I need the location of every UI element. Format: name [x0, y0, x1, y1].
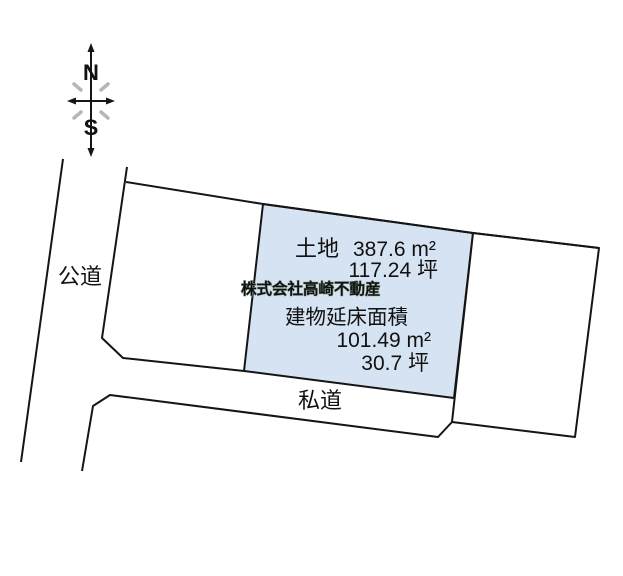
compass-diagonal-dash-nw [74, 84, 81, 90]
compass-arrowhead-south [88, 148, 95, 157]
land-plot-diagram: N S 公道 私道 土地 387.6 m² 117.24 坪 建物延床面積 10… [0, 0, 623, 576]
compass-diagonal-dash-se [101, 112, 108, 118]
compass-arrowhead-north [88, 43, 95, 52]
watermark-text: 株式会社高崎不動産 [241, 279, 381, 298]
private-road-lower-edge [82, 395, 452, 471]
compass-south-label: S [84, 115, 99, 140]
public-road-left-edge [21, 159, 63, 462]
private-road-label: 私道 [298, 388, 342, 413]
land-label: 土地 [295, 236, 339, 261]
compass-diagonal-dash-ne [101, 84, 108, 90]
building-area-m2: 101.49 m² [336, 329, 431, 352]
compass-arrowhead-west [67, 98, 76, 105]
compass-diagonal-dash-sw [74, 112, 81, 118]
building-area-label: 建物延床面積 [285, 306, 408, 329]
highlighted-parcel [244, 204, 473, 398]
compass-north-label: N [83, 60, 99, 85]
right-parcel [452, 233, 599, 437]
plot-diagram-svg: N S 公道 私道 土地 387.6 m² 117.24 坪 建物延床面積 10… [0, 0, 623, 576]
land-area-tsubo: 117.24 坪 [348, 259, 438, 282]
compass-rose: N S [67, 43, 115, 157]
compass-arrowhead-east [106, 98, 115, 105]
public-road-label: 公道 [58, 264, 102, 289]
land-area-m2: 387.6 m² [353, 238, 436, 261]
building-area-tsubo: 30.7 坪 [361, 352, 429, 375]
